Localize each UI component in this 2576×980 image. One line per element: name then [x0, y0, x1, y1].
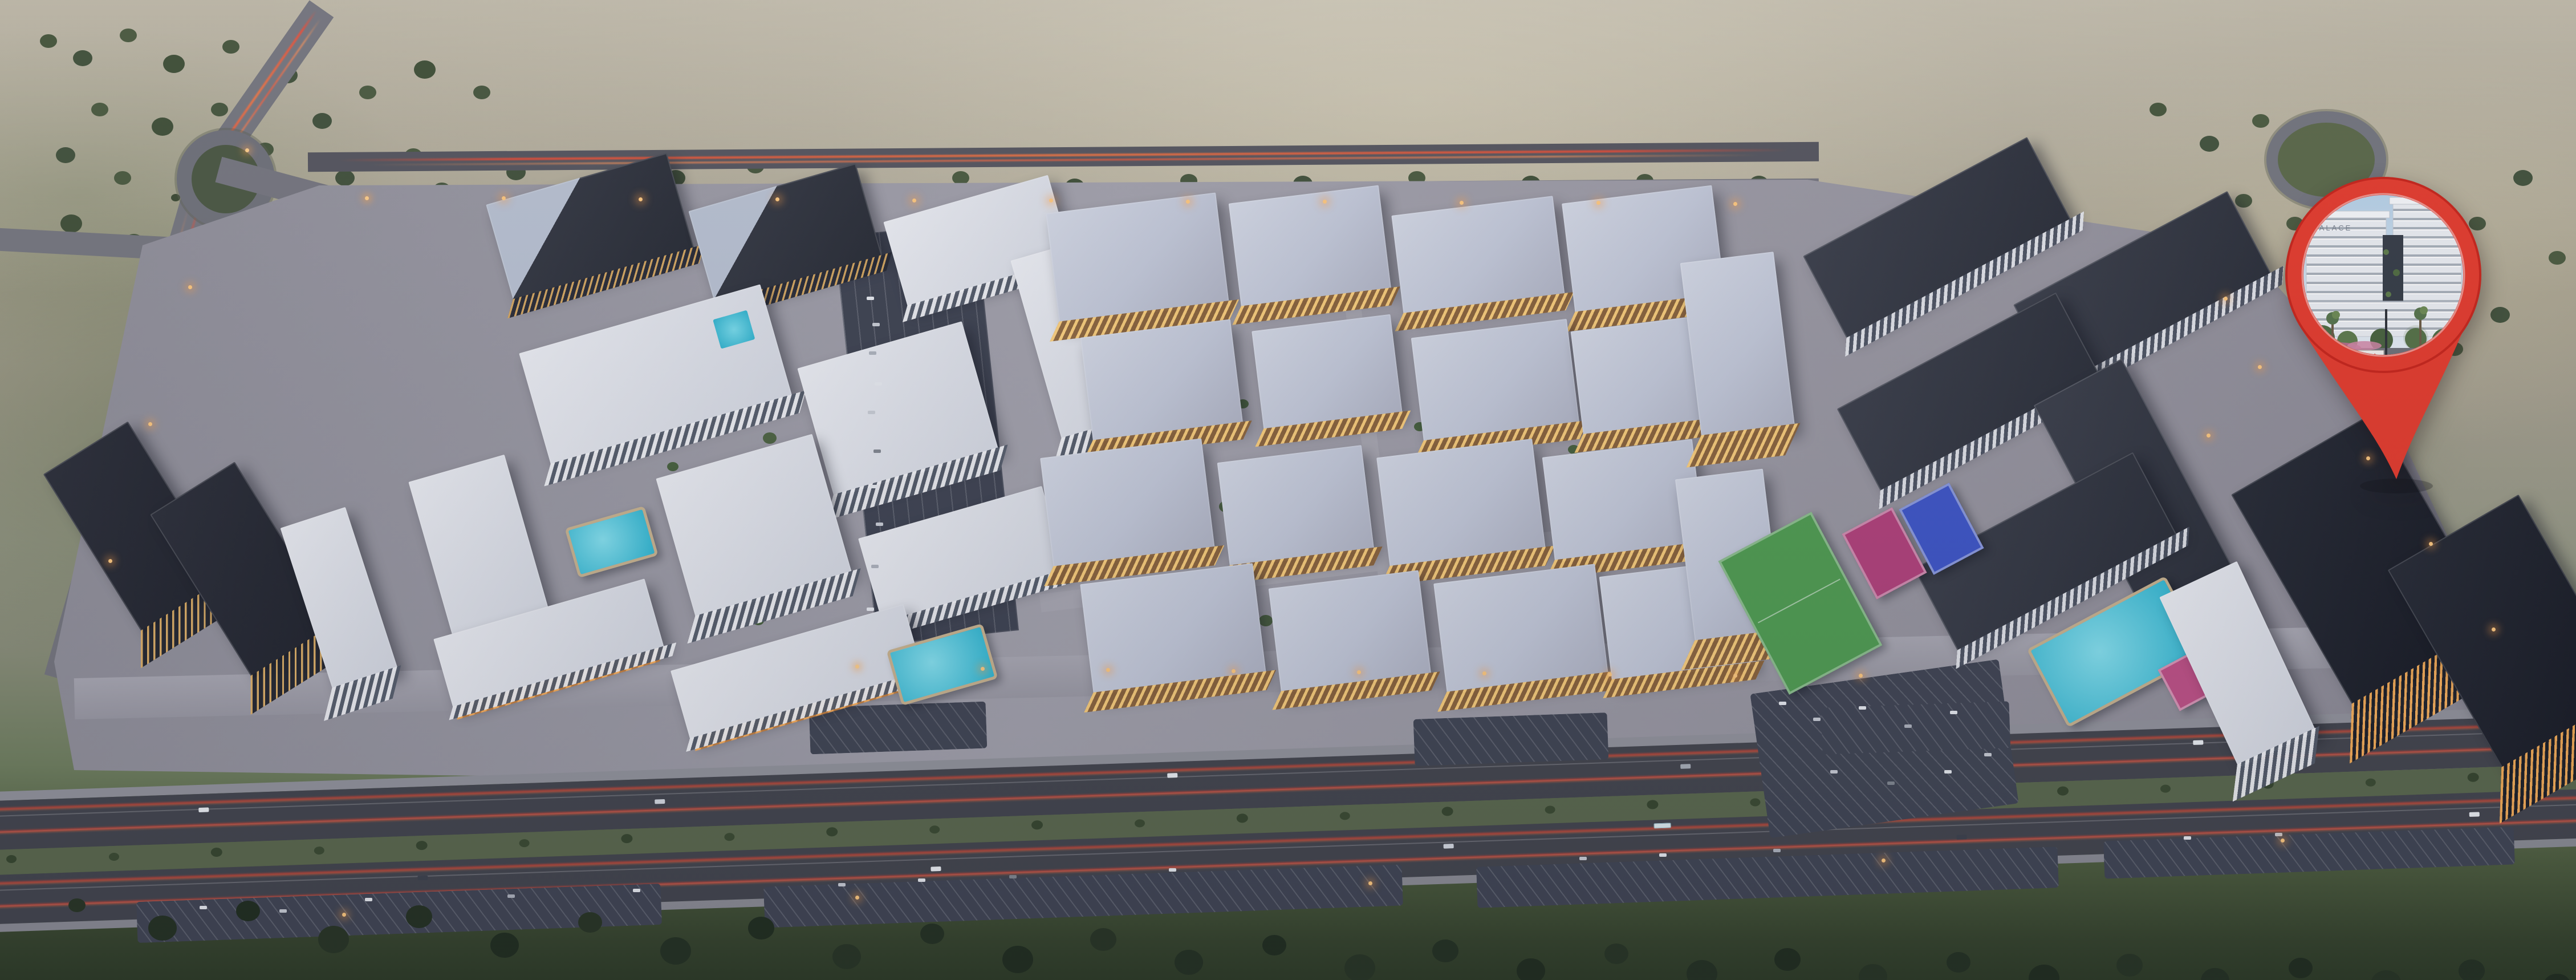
building [1040, 438, 1215, 568]
palm-row [171, 194, 180, 201]
rooftop-pool [713, 310, 755, 349]
parked-cars [1779, 702, 1786, 705]
building [1269, 570, 1432, 694]
parking-lot [1413, 712, 1609, 766]
median-palms [6, 855, 17, 864]
parked-cars [200, 906, 207, 909]
tree-cluster [2150, 103, 2167, 116]
parked-cars [867, 297, 874, 300]
bus [1654, 823, 1671, 828]
traffic [198, 807, 209, 812]
building [1252, 314, 1403, 431]
foreground-tree-row [68, 898, 86, 912]
street-lights [245, 148, 249, 152]
building [1229, 185, 1392, 309]
building [1080, 563, 1266, 695]
building [1411, 319, 1579, 443]
building [1046, 192, 1229, 323]
building [1391, 196, 1565, 314]
building [1433, 564, 1608, 694]
street-lights [365, 196, 369, 200]
building [1376, 439, 1546, 568]
building [1217, 445, 1375, 568]
aerial-render: PALACE [0, 0, 2576, 980]
parking-lot [1821, 701, 2011, 754]
pin-shadow [2360, 479, 2433, 493]
building [1080, 319, 1244, 443]
street-lights [855, 665, 859, 669]
location-pin-icon: PALACE [2215, 167, 2537, 500]
tree-cluster [40, 34, 57, 48]
